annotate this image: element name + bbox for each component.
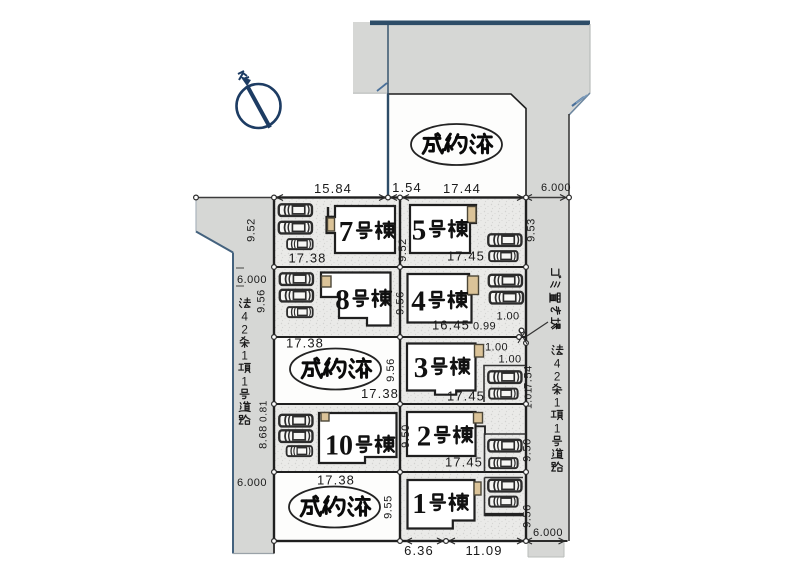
svg-text:1.00: 1.00 — [485, 342, 508, 354]
svg-text:17.45: 17.45 — [447, 389, 485, 404]
svg-text:2: 2 — [417, 420, 432, 452]
svg-text:9.52: 9.52 — [246, 218, 258, 242]
svg-text:17.44: 17.44 — [443, 181, 481, 196]
svg-text:1.00: 1.00 — [496, 311, 519, 323]
svg-text:6.000: 6.000 — [541, 182, 571, 194]
svg-text:6.000: 6.000 — [533, 527, 563, 539]
svg-text:17.38: 17.38 — [361, 386, 399, 401]
svg-text:7: 7 — [339, 216, 354, 248]
svg-text:7.54: 7.54 — [523, 365, 535, 389]
svg-text:4: 4 — [554, 358, 561, 371]
svg-text:11.09: 11.09 — [465, 543, 502, 558]
svg-text:0.81: 0.81 — [259, 400, 270, 422]
svg-text:9.55: 9.55 — [383, 495, 395, 519]
svg-text:8.68: 8.68 — [258, 425, 270, 449]
svg-text:17.38: 17.38 — [317, 473, 355, 488]
svg-text:6.000: 6.000 — [237, 477, 267, 489]
svg-text:4: 4 — [411, 285, 426, 317]
svg-text:2: 2 — [554, 371, 561, 384]
svg-text:8: 8 — [335, 284, 350, 316]
svg-text:1: 1 — [554, 423, 561, 436]
svg-text:16.45: 16.45 — [432, 318, 470, 333]
svg-text:0.99: 0.99 — [473, 321, 496, 333]
svg-text:6.36: 6.36 — [404, 543, 434, 558]
svg-text:3: 3 — [414, 352, 429, 384]
svg-text:1.54: 1.54 — [392, 180, 422, 195]
svg-text:9.50: 9.50 — [522, 438, 534, 462]
svg-text:1: 1 — [412, 488, 427, 520]
svg-text:4: 4 — [241, 311, 248, 324]
svg-text:9.53: 9.53 — [526, 218, 538, 242]
svg-text:6.000: 6.000 — [237, 274, 267, 286]
svg-text:17.45: 17.45 — [445, 455, 483, 470]
svg-text:1: 1 — [241, 376, 248, 389]
svg-text:9.52: 9.52 — [397, 238, 409, 262]
svg-text:17.45: 17.45 — [447, 249, 485, 264]
svg-text:9.56: 9.56 — [395, 291, 407, 315]
svg-text:17.38: 17.38 — [286, 336, 324, 351]
svg-text:1: 1 — [241, 350, 248, 363]
svg-text:17.38: 17.38 — [288, 251, 326, 266]
svg-text:9.56: 9.56 — [256, 289, 268, 313]
svg-text:2: 2 — [241, 324, 248, 337]
svg-text:9.50: 9.50 — [400, 424, 412, 448]
svg-text:5: 5 — [412, 214, 427, 246]
svg-text:9.56: 9.56 — [385, 358, 397, 382]
svg-text:1: 1 — [554, 397, 561, 410]
svg-text:15.84: 15.84 — [314, 181, 352, 196]
svg-text:9.56: 9.56 — [522, 504, 534, 528]
svg-text:10: 10 — [325, 431, 353, 462]
svg-text:1.00: 1.00 — [498, 354, 521, 366]
